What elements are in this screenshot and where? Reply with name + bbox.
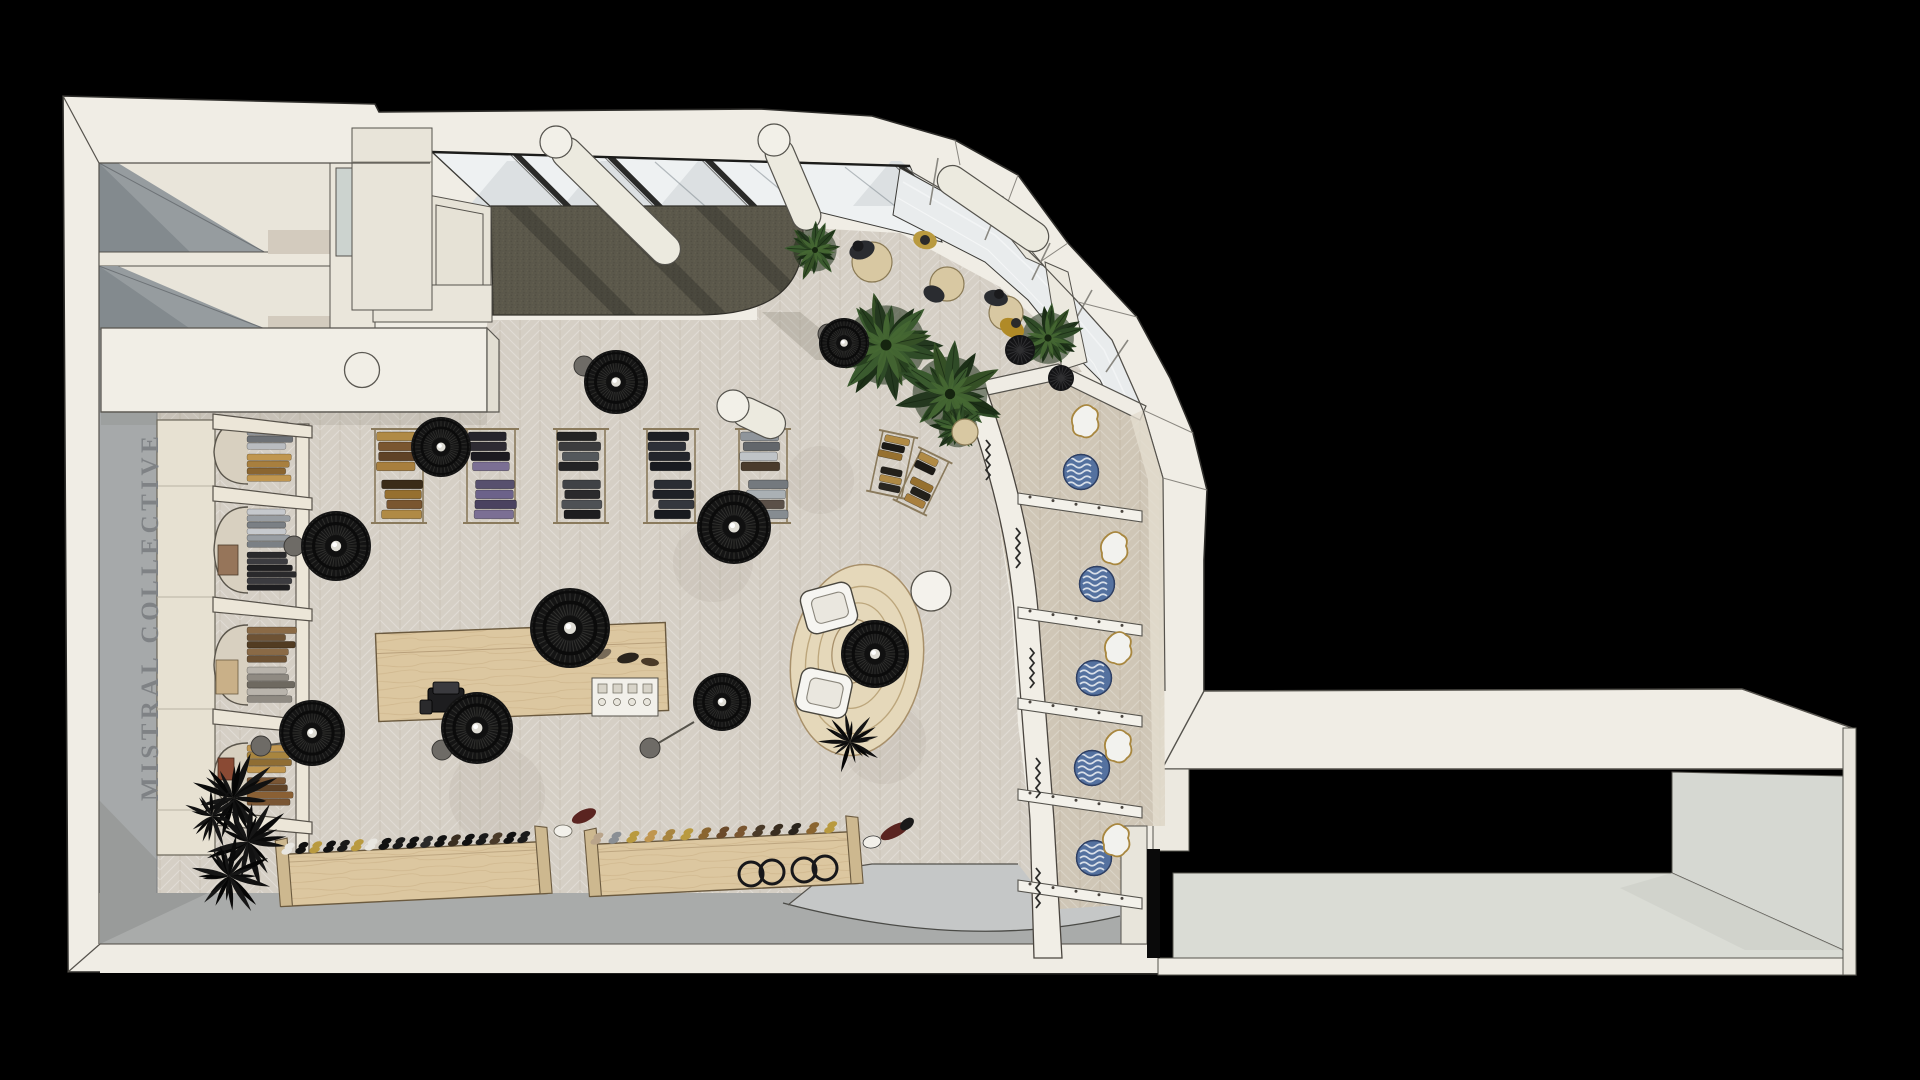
svg-text:MISTRAL COLLECTIVE: MISTRAL COLLECTIVE (137, 432, 164, 801)
